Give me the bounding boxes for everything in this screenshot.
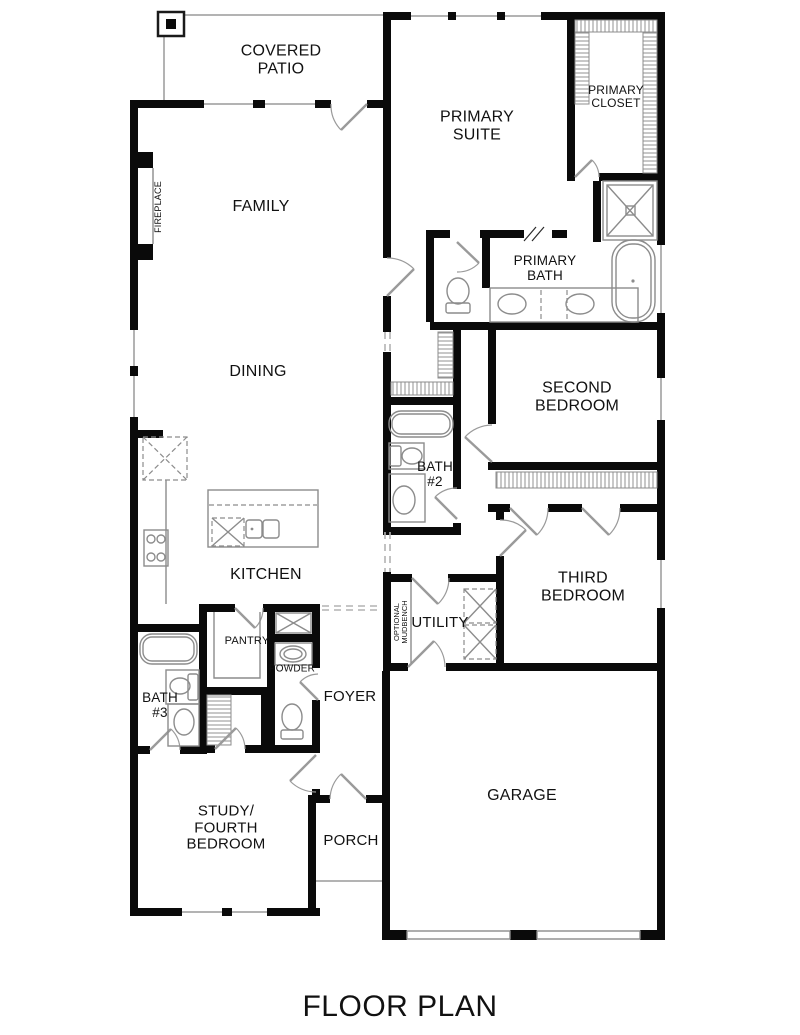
room-label-covered-patio: COVERED PATIO (241, 42, 322, 77)
room-label-bath-2: BATH #2 (417, 460, 453, 490)
bath2-door (435, 488, 457, 519)
primary-suite-door (387, 258, 414, 296)
floor-plan: COVERED PATIO PRIMARY SUITE PRIMARY CLOS… (0, 0, 800, 1035)
patio-door (331, 104, 367, 130)
room-label-primary-suite: PRIMARY SUITE (440, 108, 514, 143)
front-door (330, 774, 366, 799)
page-title: FLOOR PLAN (302, 990, 497, 1024)
second-bedroom-door (465, 425, 492, 462)
third-bedroom-door (500, 520, 526, 556)
fixtures-layer (140, 168, 657, 746)
utility-door (412, 578, 449, 604)
bath3-door (150, 729, 180, 750)
cooktop-icon (144, 530, 168, 566)
room-label-primary-bath: PRIMARY BATH (514, 254, 577, 284)
room-label-garage: GARAGE (487, 787, 557, 805)
room-label-family: FAMILY (233, 198, 290, 216)
toilet-icon (446, 278, 470, 313)
bathtub-icon (389, 411, 453, 437)
toilet-icon (281, 704, 303, 739)
closet-door (510, 508, 548, 535)
shower-icon (603, 181, 657, 240)
kitchen-sink-icon (246, 520, 279, 538)
bathtub-icon (140, 634, 197, 664)
cased-openings-layer (322, 332, 390, 610)
washer-dryer-icon (464, 589, 496, 659)
room-label-study: STUDY/ FOURTH BEDROOM (187, 803, 266, 853)
room-label-porch: PORCH (323, 833, 378, 850)
garage-door (537, 931, 640, 939)
study-door (290, 755, 316, 792)
room-label-utility: UTILITY (411, 615, 468, 632)
kitchen-island (208, 490, 318, 547)
room-label-kitchen: KITCHEN (230, 566, 302, 584)
room-label-foyer: FOYER (324, 689, 377, 706)
room-label-dining: DINING (229, 363, 286, 381)
room-label-primary-closet: PRIMARY CLOSET (588, 84, 644, 110)
pantry-door (235, 608, 263, 628)
room-label-powder: POWDER (269, 664, 315, 675)
room-label-pantry: PANTRY (225, 635, 270, 647)
water-closet-door (457, 242, 479, 272)
garage-entry-door (408, 641, 445, 667)
refrigerator-icon (143, 437, 187, 480)
room-label-third-bedroom: THIRD BEDROOM (541, 569, 625, 604)
room-label-optional-mudbench: OPTIONAL MUDBENCH (393, 600, 410, 643)
primary-closet-door (575, 160, 599, 177)
powder-door (300, 674, 318, 700)
room-label-bath-3: BATH #3 (142, 691, 178, 721)
room-label-second-bedroom: SECOND BEDROOM (535, 379, 619, 414)
sink-icon (275, 643, 312, 665)
coat-closet-icon (276, 613, 311, 633)
closet-door (582, 508, 620, 535)
room-label-fireplace: FIREPLACE (154, 181, 164, 233)
bathtub-icon (612, 240, 655, 322)
garage-door (407, 931, 510, 939)
floorplan-drawing (0, 0, 800, 1035)
